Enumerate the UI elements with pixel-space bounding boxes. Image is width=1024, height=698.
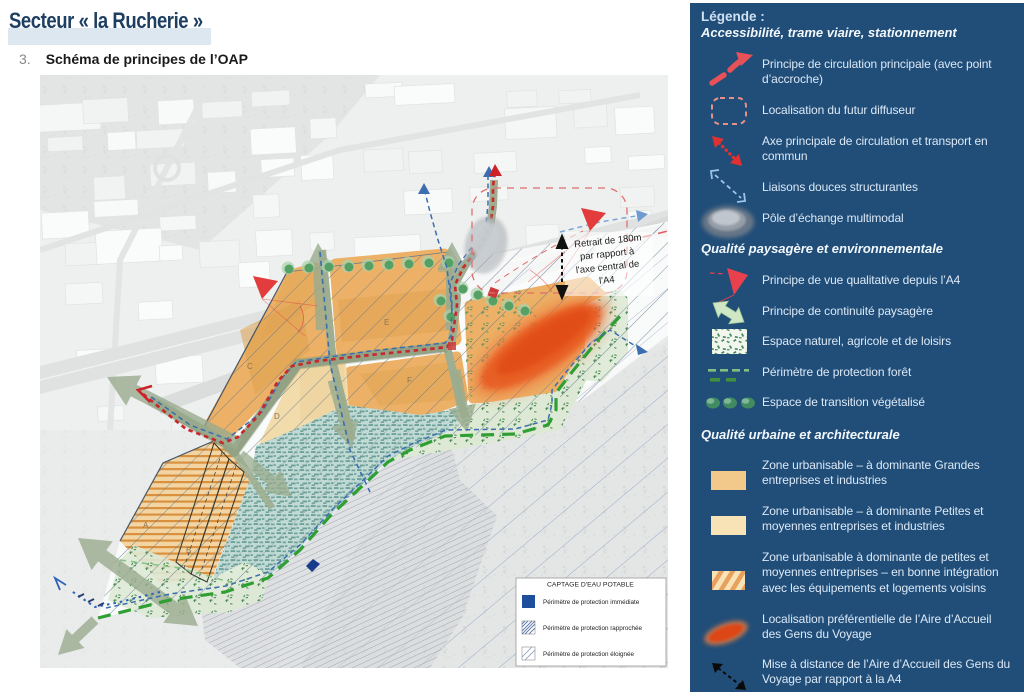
svg-text:l'A4: l'A4 <box>599 274 616 287</box>
svg-text:Périmètre de protection immédi: Périmètre de protection immédiate <box>543 599 640 606</box>
svg-text:C: C <box>247 362 253 371</box>
svg-text:Périmètre de protection rappro: Périmètre de protection rapprochée <box>543 625 643 632</box>
svg-text:B: B <box>186 546 191 555</box>
svg-text:F: F <box>407 376 412 385</box>
svg-text:E: E <box>384 318 389 327</box>
svg-text:A: A <box>143 521 149 530</box>
svg-text:D: D <box>274 412 280 421</box>
svg-text:CAPTAGE D'EAU POTABLE: CAPTAGE D'EAU POTABLE <box>547 582 634 589</box>
svg-text:Périmètre de protection éloign: Périmètre de protection éloignée <box>543 651 635 658</box>
